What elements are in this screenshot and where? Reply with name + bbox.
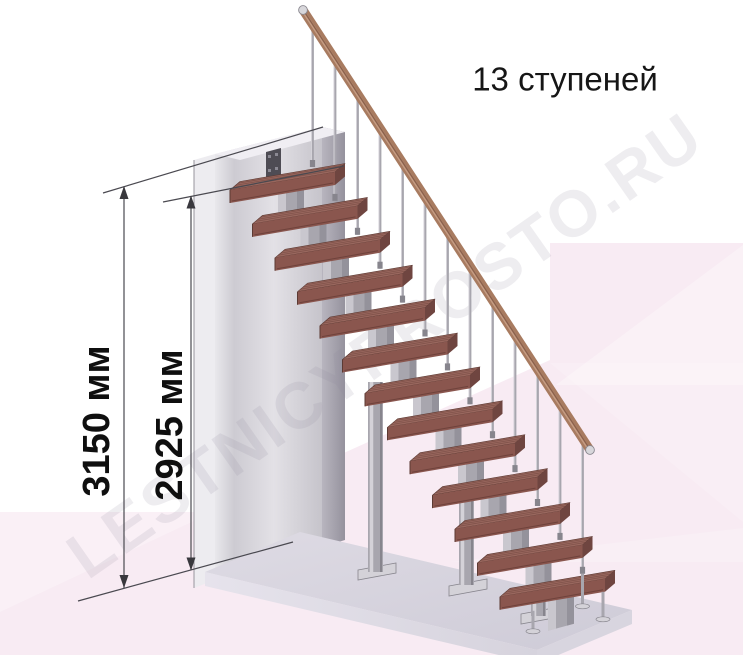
baluster-mount — [422, 330, 427, 337]
baluster-mount — [490, 431, 495, 438]
baluster-mount — [310, 160, 315, 167]
dimension-label-upper-height: 2925 мм — [149, 349, 191, 500]
baluster-mount — [535, 499, 540, 506]
baluster-mount — [467, 397, 472, 404]
wall-left-sliver — [194, 154, 215, 588]
baluster-mount — [445, 363, 450, 370]
baluster-mount — [580, 567, 585, 574]
diagram-canvas: LESTNICYPROSTO.RU 3150 мм 2925 мм 13 сту… — [0, 0, 743, 655]
baluster-mount — [400, 296, 405, 303]
handrail-bottom-cap — [586, 446, 595, 455]
baluster-mount — [332, 194, 337, 201]
baluster-mount — [355, 228, 360, 235]
leg-foot-plate — [526, 629, 540, 634]
baluster-mount — [377, 262, 382, 269]
dimension-label-total-height: 3150 мм — [76, 345, 118, 496]
baluster-mount — [557, 533, 562, 540]
handrail-top-cap — [299, 6, 308, 15]
leg-foot-plate — [596, 617, 610, 622]
steps-count-title: 13 ступеней — [472, 61, 658, 98]
baluster-mount — [512, 465, 517, 472]
staircase-diagram: LESTNICYPROSTO.RU 3150 мм 2925 мм 13 сту… — [0, 0, 743, 655]
leg-foot-plate — [576, 604, 590, 609]
